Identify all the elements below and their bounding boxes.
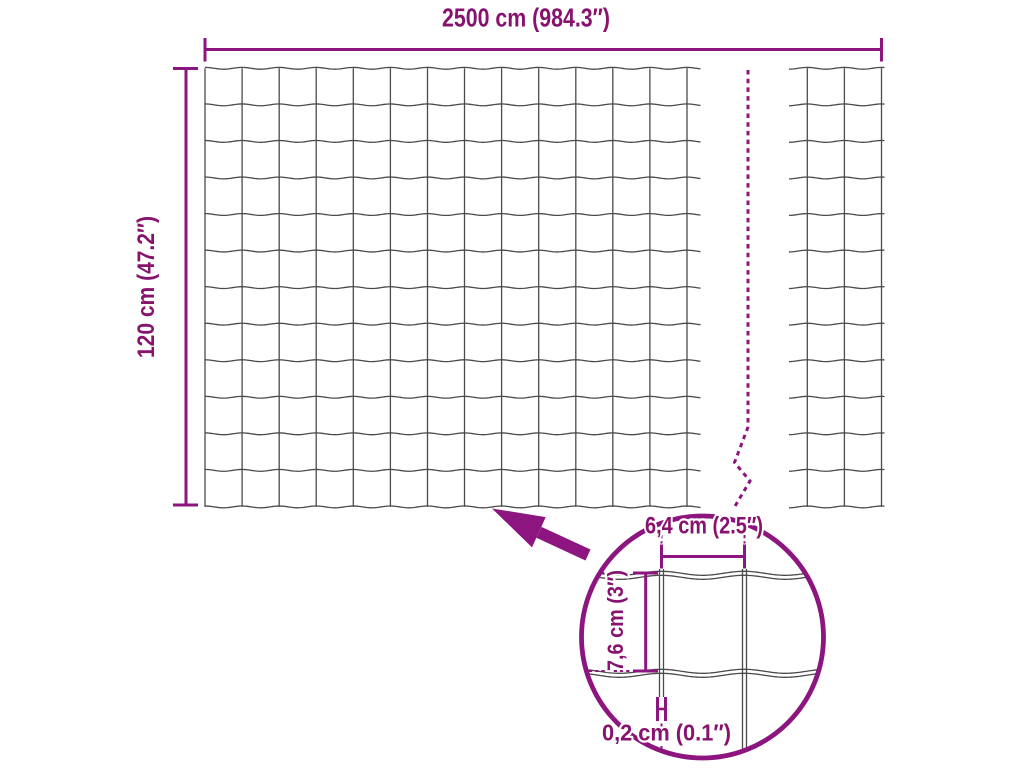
svg-text:7,6 cm (3″): 7,6 cm (3″) <box>603 570 628 671</box>
svg-text:2500 cm (984.3″): 2500 cm (984.3″) <box>442 3 610 33</box>
svg-text:6,4 cm (2.5″): 6,4 cm (2.5″) <box>645 513 763 540</box>
svg-text:120 cm (47.2″): 120 cm (47.2″) <box>133 216 160 358</box>
svg-text:0,2 cm (0.1″): 0,2 cm (0.1″) <box>602 720 731 746</box>
